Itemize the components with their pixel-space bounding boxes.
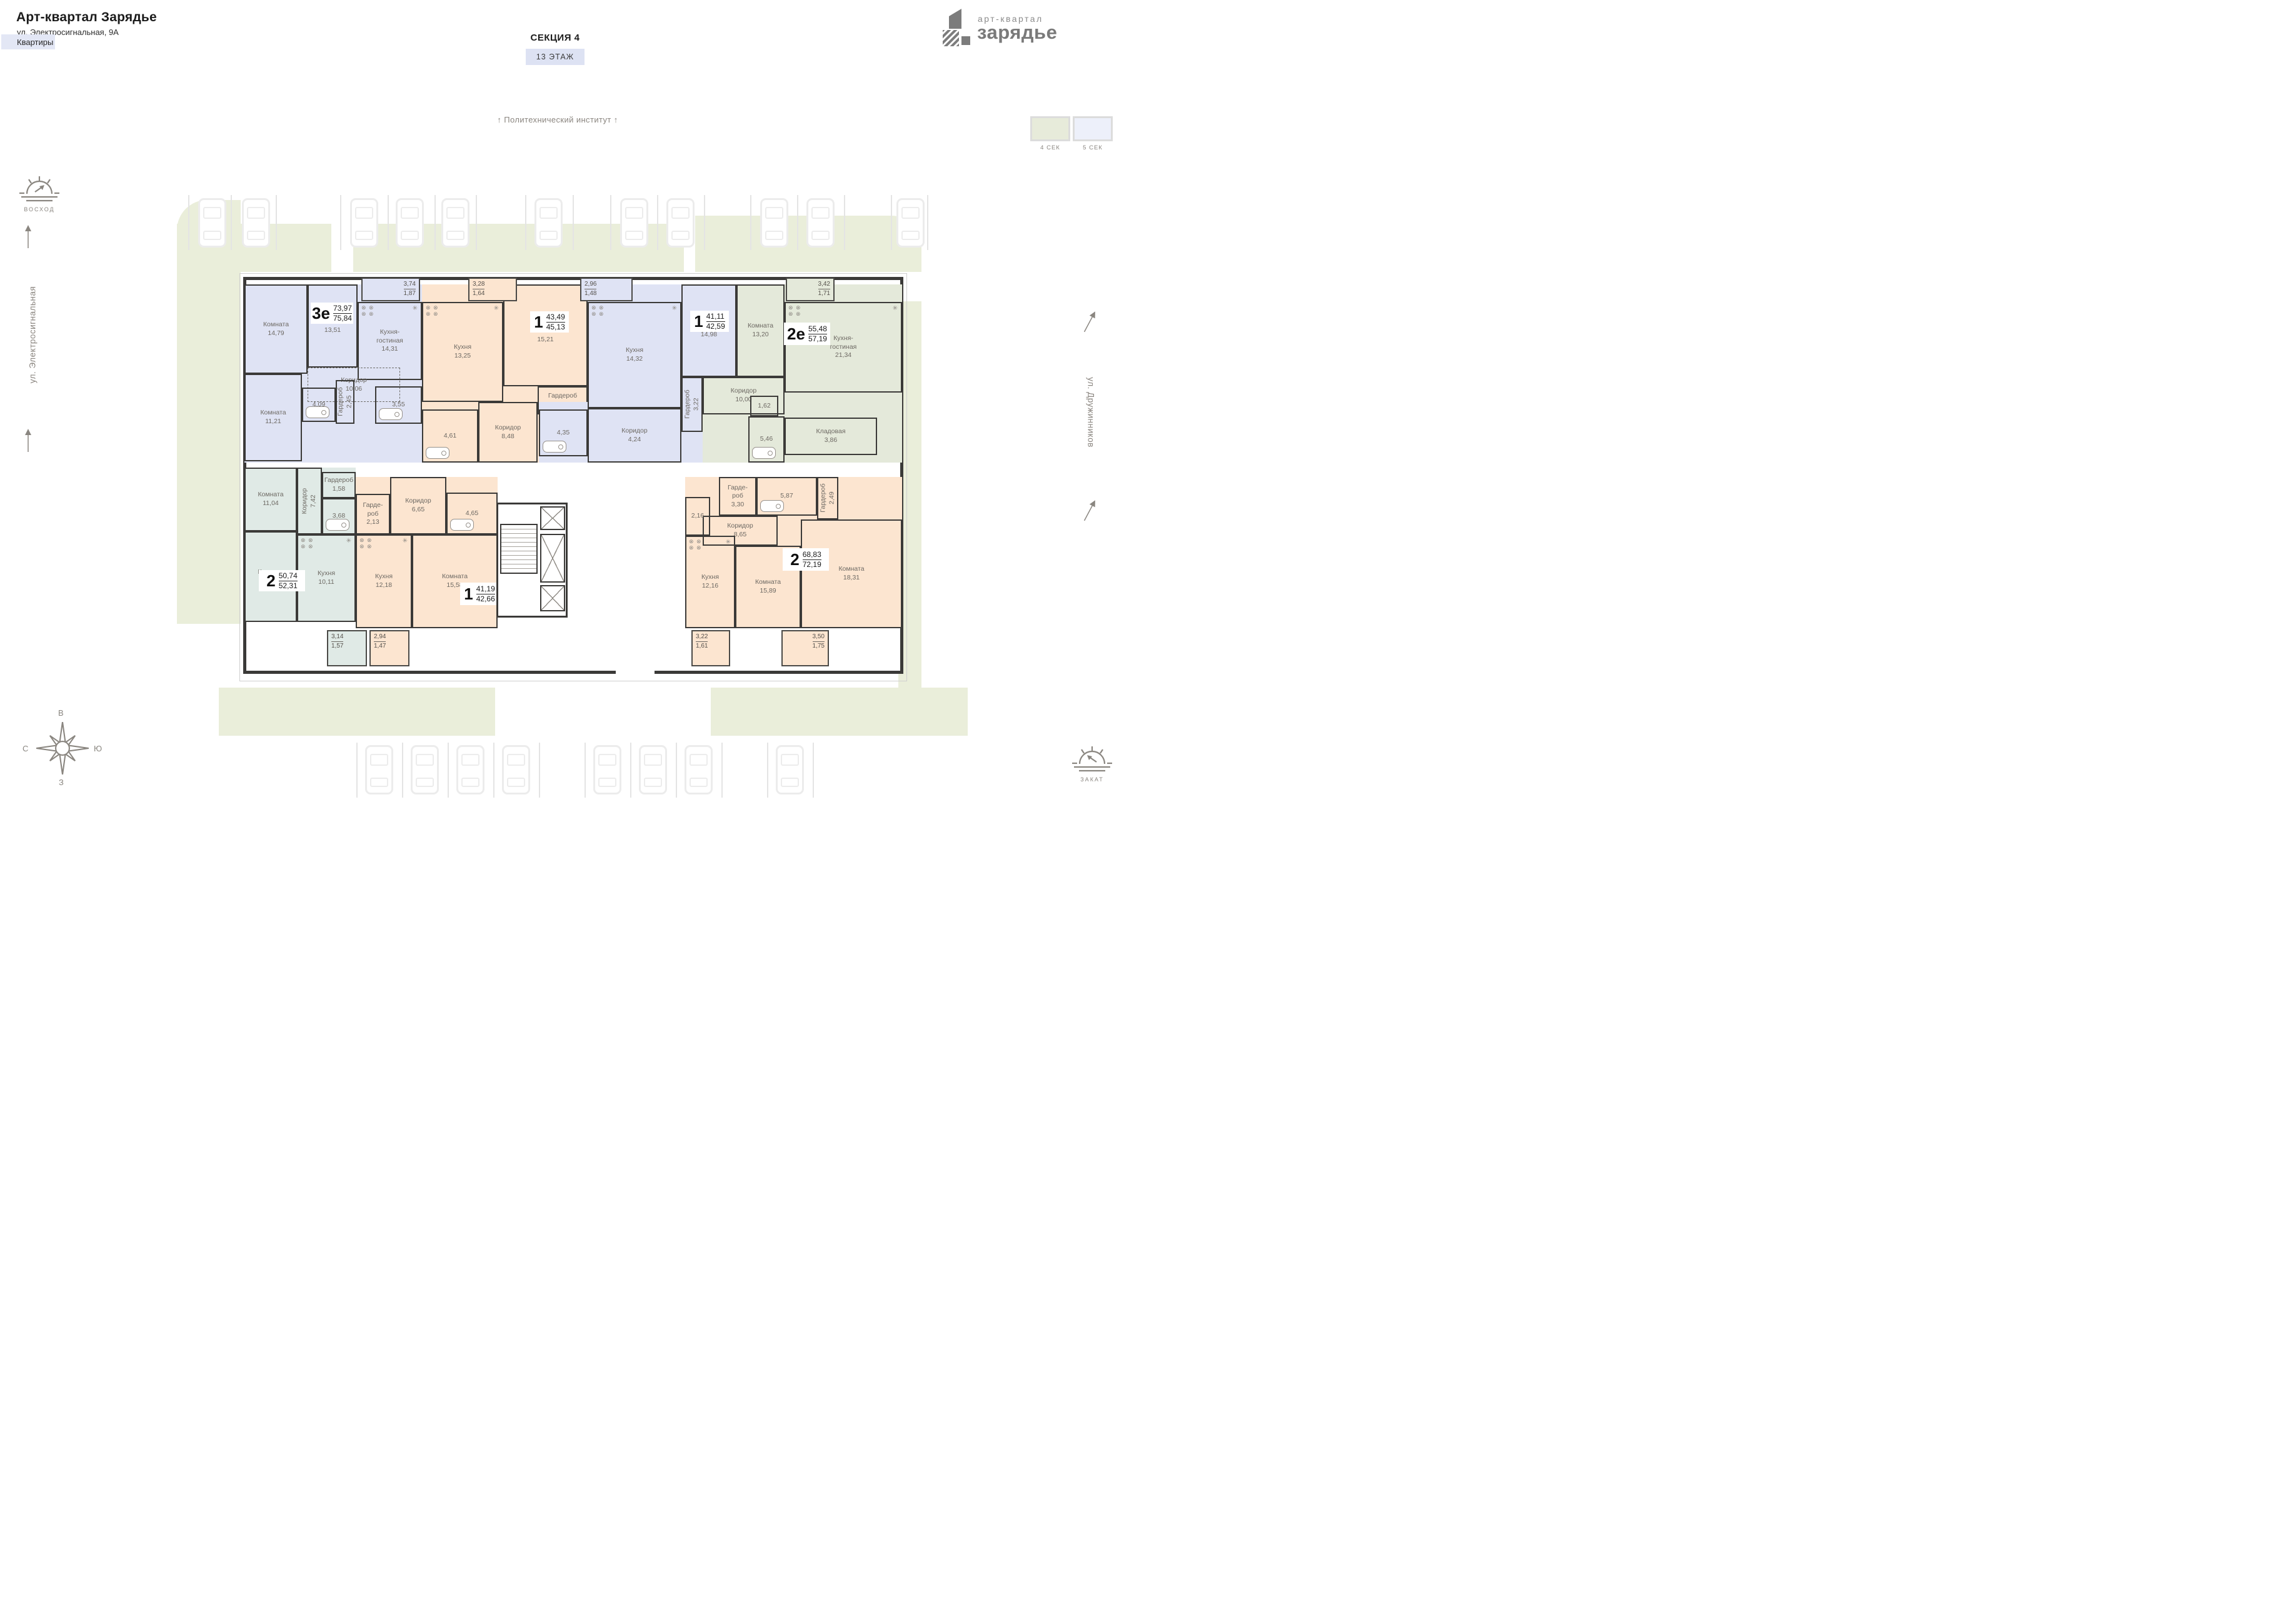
cooker-hood-icon: ✳	[413, 305, 418, 312]
apartment-badge-1a[interactable]: 143,4945,13	[530, 311, 569, 333]
apartment-badge-1b[interactable]: 141,1142,59	[690, 311, 729, 332]
room-label: 4,65	[466, 509, 478, 518]
parking-divider	[767, 743, 768, 798]
floor-badge: 13 ЭТАЖ	[526, 49, 585, 65]
room-label: Коридор6,65	[405, 497, 431, 514]
car-icon	[441, 198, 469, 248]
logo-building-icon	[941, 9, 974, 48]
car-icon	[396, 198, 424, 248]
page-title: Арт-квартал Зарядье	[16, 10, 157, 25]
room-Гарде-роб-3,30: Гарде-роб3,30	[719, 477, 756, 516]
car-icon	[502, 745, 530, 794]
bathtub-icon	[379, 408, 403, 420]
legend-label-5sek: 5 СЕК	[1073, 144, 1113, 151]
parking-divider	[276, 195, 277, 250]
room-label: Кухня14,32	[626, 346, 643, 363]
room-label: 5,87	[780, 492, 793, 501]
car-icon	[620, 198, 648, 248]
car-icon	[896, 198, 925, 248]
apartment-badge-3e[interactable]: 3е73,9775,84	[311, 303, 353, 324]
room-Кухня-14,32: Кухня14,32⊗ ⊗⊗ ⊗✳	[588, 302, 681, 408]
stove-icon: ⊗ ⊗⊗ ⊗	[689, 539, 702, 551]
logo-text-big: зарядье	[977, 24, 1057, 41]
apartment-badge-1c[interactable]: 141,1942,66	[460, 583, 499, 605]
room-wet-4,65: 4,65	[446, 493, 498, 534]
room-label: Гарде-роб3,30	[728, 484, 748, 509]
legend-label-4sek: 4 СЕК	[1030, 144, 1070, 151]
stove-icon: ⊗ ⊗⊗ ⊗	[788, 305, 801, 318]
street-arrow-icon	[1080, 309, 1099, 334]
room-Коридор-6,65: Коридор6,65	[390, 477, 446, 534]
room-Комната-13,20: Комната13,20	[736, 284, 785, 377]
room-label: Кухня12,18	[375, 573, 393, 589]
balcony-3,50: 3,501,75	[781, 630, 829, 666]
car-icon	[593, 745, 621, 794]
car-icon	[685, 745, 713, 794]
room-Гардероб-1,58: Гардероб1,58	[322, 472, 356, 498]
parking-divider	[476, 195, 477, 250]
car-icon	[776, 745, 804, 794]
balcony-3,42: 3,421,71	[786, 278, 835, 301]
balcony-2,96: 2,961,48	[580, 278, 633, 301]
car-icon	[760, 198, 788, 248]
sunset-label: ЗАКАТ	[1064, 776, 1120, 783]
elevator-icon	[540, 534, 565, 583]
compass-right-label: Ю	[94, 744, 102, 753]
street-arrow-icon	[24, 429, 33, 453]
parking-divider	[434, 195, 436, 250]
car-icon	[666, 198, 695, 248]
room-Коридор-8,48: Коридор8,48	[478, 402, 538, 463]
parking-divider	[927, 195, 928, 250]
room-label: Комната11,21	[260, 409, 286, 426]
room-label: 1,62	[758, 402, 770, 411]
room-label: Гардероб2,49	[819, 484, 836, 513]
room-Гарде-роб-2,13: Гарде-роб2,13	[356, 494, 390, 534]
room-Гардероб-3,22: Гардероб3,22	[681, 377, 703, 432]
room-label: Комната11,04	[258, 491, 283, 508]
stove-icon: ⊗ ⊗⊗ ⊗	[591, 305, 605, 318]
balcony-2,94: 2,941,47	[369, 630, 409, 666]
up-arrow-icon: ↑	[614, 115, 618, 124]
bathtub-icon	[760, 500, 784, 512]
room-wet-4,35: 4,35	[539, 409, 588, 456]
bathtub-icon	[543, 441, 566, 453]
street-arrow-icon	[24, 225, 33, 249]
green-area	[711, 688, 968, 736]
apartment-badge-2b[interactable]: 250,7452,31	[259, 570, 305, 591]
parking-divider	[585, 743, 586, 798]
apartment-badge-2e[interactable]: 2е55,4857,19	[784, 323, 830, 345]
room-label: Кухня10,11	[318, 569, 335, 586]
parking-divider	[721, 743, 723, 798]
parking-divider	[750, 195, 751, 250]
stove-icon: ⊗ ⊗⊗ ⊗	[359, 538, 373, 550]
room-Кухня-13,25: Кухня13,25⊗ ⊗⊗ ⊗✳	[422, 302, 503, 402]
room-label: Комната18,31	[838, 565, 864, 582]
stove-icon: ⊗ ⊗⊗ ⊗	[426, 305, 439, 318]
room-label: Коридор7,42	[301, 488, 318, 514]
parking-divider	[388, 195, 389, 250]
entrance-gap	[616, 669, 655, 678]
room-Коридор-4,24: Коридор4,24	[588, 408, 681, 463]
room-wet-3,68: 3,68	[322, 498, 356, 534]
room-label: Кухня12,16	[701, 573, 719, 590]
parking-divider	[573, 195, 574, 250]
compass-top-label: В	[58, 708, 64, 718]
room-Кухня-10,11: Кухня10,11⊗ ⊗⊗ ⊗✳	[297, 534, 356, 622]
room-label: 4,35	[557, 429, 569, 438]
parking-divider	[231, 195, 232, 250]
room-Кухня-12,18: Кухня12,18⊗ ⊗⊗ ⊗✳	[356, 534, 412, 628]
room-label: Кухня13,25	[454, 343, 471, 360]
street-label-left: ул. Электросигнальная	[28, 229, 38, 441]
parking-divider	[891, 195, 892, 250]
car-icon	[350, 198, 378, 248]
parking-divider	[188, 195, 189, 250]
section-title: СЕКЦИЯ 4	[505, 33, 605, 43]
room-label: Комната14,79	[263, 321, 289, 338]
compass-left-label: С	[23, 744, 28, 753]
room-Гардероб-2,49: Гардероб2,49	[817, 477, 838, 519]
room-wet-5,46: 5,46	[748, 416, 785, 463]
parking-divider	[797, 195, 798, 250]
room-label: Кухня-гостиная21,34	[830, 334, 857, 360]
room-wet-5,87: 5,87	[756, 477, 817, 516]
balcony-3,22: 3,221,61	[691, 630, 730, 666]
logo: арт-квартал зарядье	[941, 8, 1104, 48]
balcony-3,74: 3,741,87	[361, 278, 420, 301]
room-Комната-15,58: Комната15,58	[412, 534, 498, 628]
parking-divider	[704, 195, 705, 250]
tab-kvartiry[interactable]: Квартиры	[1, 34, 55, 49]
parking-divider	[610, 195, 611, 250]
car-icon	[242, 198, 270, 248]
cooker-hood-icon: ✳	[672, 305, 677, 312]
sunrise-label: ВОСХОД	[11, 206, 68, 213]
room-wet-4,61: 4,61	[422, 409, 478, 463]
room-label: Гардероб3,22	[683, 390, 700, 419]
cooker-hood-icon: ✳	[893, 305, 898, 312]
car-icon	[411, 745, 439, 794]
parking-divider	[630, 743, 631, 798]
parking-divider	[448, 743, 449, 798]
car-icon	[456, 745, 484, 794]
legend-swatch-4sek[interactable]	[1030, 116, 1070, 141]
room-Кладовая-3,86: Кладовая3,86	[785, 418, 877, 455]
landmark-label: ↑ Политехнический институт ↑	[401, 115, 714, 124]
room-Комната-11,04: Комната11,04	[244, 468, 297, 531]
apartment-badge-2a[interactable]: 268,8372,19	[783, 548, 829, 571]
stairs-icon	[500, 524, 538, 574]
compass-icon	[36, 722, 89, 774]
elevator-icon	[540, 585, 565, 611]
room-Комната-13,51: Комната13,51	[308, 284, 358, 368]
parking-divider	[539, 743, 540, 798]
room-label: Гардероб2,45	[336, 388, 353, 416]
parking-divider	[844, 195, 845, 250]
bathtub-icon	[326, 519, 349, 531]
room-label: Коридор8,48	[495, 424, 521, 441]
room-wet-2,16: 2,16	[685, 497, 710, 536]
cooker-hood-icon: ✳	[726, 539, 731, 546]
room-Комната-11,21: Комната11,21	[244, 374, 302, 461]
room-label: Кладовая3,86	[816, 428, 845, 444]
parking-divider	[402, 743, 403, 798]
balcony-3,14: 3,141,57	[327, 630, 367, 666]
room-label: Кухня-гостиная14,31	[376, 328, 403, 354]
room-label: Комната15,89	[755, 578, 781, 595]
room-wet-1,62: 1,62	[750, 396, 778, 416]
room-wet-3,55: 3,55	[375, 386, 422, 424]
cooker-hood-icon: ✳	[346, 538, 351, 544]
room-Гардероб-2,45: Гардероб2,45	[336, 380, 354, 424]
up-arrow-icon: ↑	[497, 115, 501, 124]
stove-icon: ⊗ ⊗⊗ ⊗	[361, 305, 374, 318]
room-Коридор-7,42: Коридор7,42	[297, 468, 322, 534]
compass-bottom-label: З	[59, 778, 64, 787]
car-icon	[639, 745, 667, 794]
car-icon	[806, 198, 835, 248]
room-label: 4,61	[444, 432, 456, 441]
room-label: Гардероб1,58	[324, 476, 353, 493]
room-Кухня-12,16: Кухня12,16⊗ ⊗⊗ ⊗✳	[685, 536, 735, 628]
cooker-hood-icon: ✳	[494, 305, 499, 312]
parking-divider	[657, 195, 658, 250]
car-icon	[534, 198, 563, 248]
room-Комната-14,79: Комната14,79	[244, 284, 308, 374]
bathtub-icon	[450, 519, 474, 531]
sunrise-icon	[19, 175, 60, 204]
parking-divider	[493, 743, 494, 798]
bathtub-icon	[752, 447, 776, 459]
parking-divider	[525, 195, 526, 250]
car-icon	[365, 745, 393, 794]
legend-swatch-5sek[interactable]	[1073, 116, 1113, 141]
room-wet-4,09: 4,09	[302, 388, 336, 422]
room-label: Комната13,20	[748, 322, 773, 339]
bathtub-icon	[306, 406, 329, 418]
room-Комната-18,31: Комната18,31	[801, 519, 902, 628]
room-label: 2,16	[691, 512, 704, 521]
room-label: Гарде-роб2,13	[363, 501, 383, 527]
parking-divider	[356, 743, 358, 798]
room-label: Коридор4,24	[621, 427, 647, 444]
balcony-3,28: 3,281,64	[468, 278, 517, 301]
street-label-right: ул. Дружинников	[1086, 319, 1096, 506]
car-icon	[198, 198, 226, 248]
sunset-icon	[1071, 745, 1113, 774]
elevator-icon	[540, 506, 565, 530]
parking-divider	[676, 743, 677, 798]
bathtub-icon	[426, 447, 449, 459]
room-label: 5,46	[760, 435, 773, 444]
street-arrow-icon	[1080, 498, 1099, 523]
parking-divider	[340, 195, 341, 250]
stove-icon: ⊗ ⊗⊗ ⊗	[301, 538, 314, 550]
room-Кухня-гостиная-21,34: Кухня-гостиная21,34⊗ ⊗⊗ ⊗✳	[785, 302, 902, 393]
parking-divider	[813, 743, 814, 798]
green-area	[219, 688, 495, 736]
cooker-hood-icon: ✳	[403, 538, 408, 544]
